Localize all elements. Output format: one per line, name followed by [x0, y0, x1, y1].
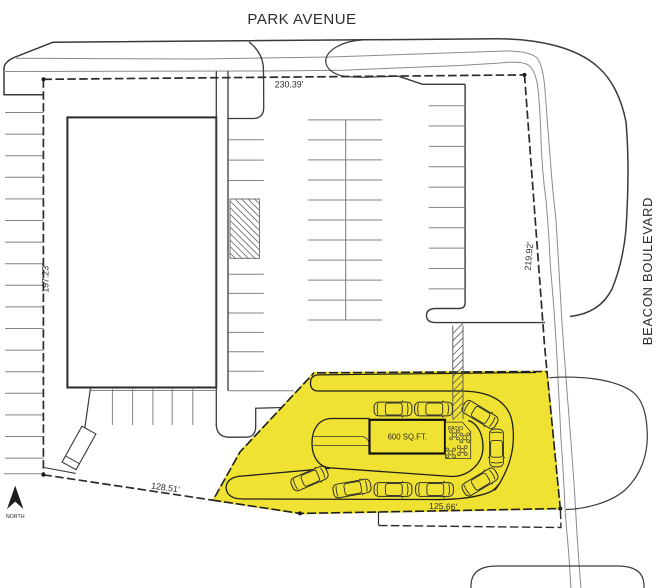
svg-text:125.66': 125.66'	[429, 501, 458, 512]
svg-text:197.23': 197.23'	[41, 264, 51, 293]
svg-text:PARK AVENUE: PARK AVENUE	[247, 11, 356, 28]
svg-text:600 SQ.FT.: 600 SQ.FT.	[388, 432, 427, 441]
svg-text:230.39': 230.39'	[275, 80, 304, 90]
svg-text:BEACON BOULEVARD: BEACON BOULEVARD	[640, 197, 655, 345]
svg-text:NORTH: NORTH	[6, 514, 25, 520]
svg-text:128.51': 128.51'	[151, 480, 181, 494]
svg-text:219.92': 219.92'	[523, 241, 535, 271]
